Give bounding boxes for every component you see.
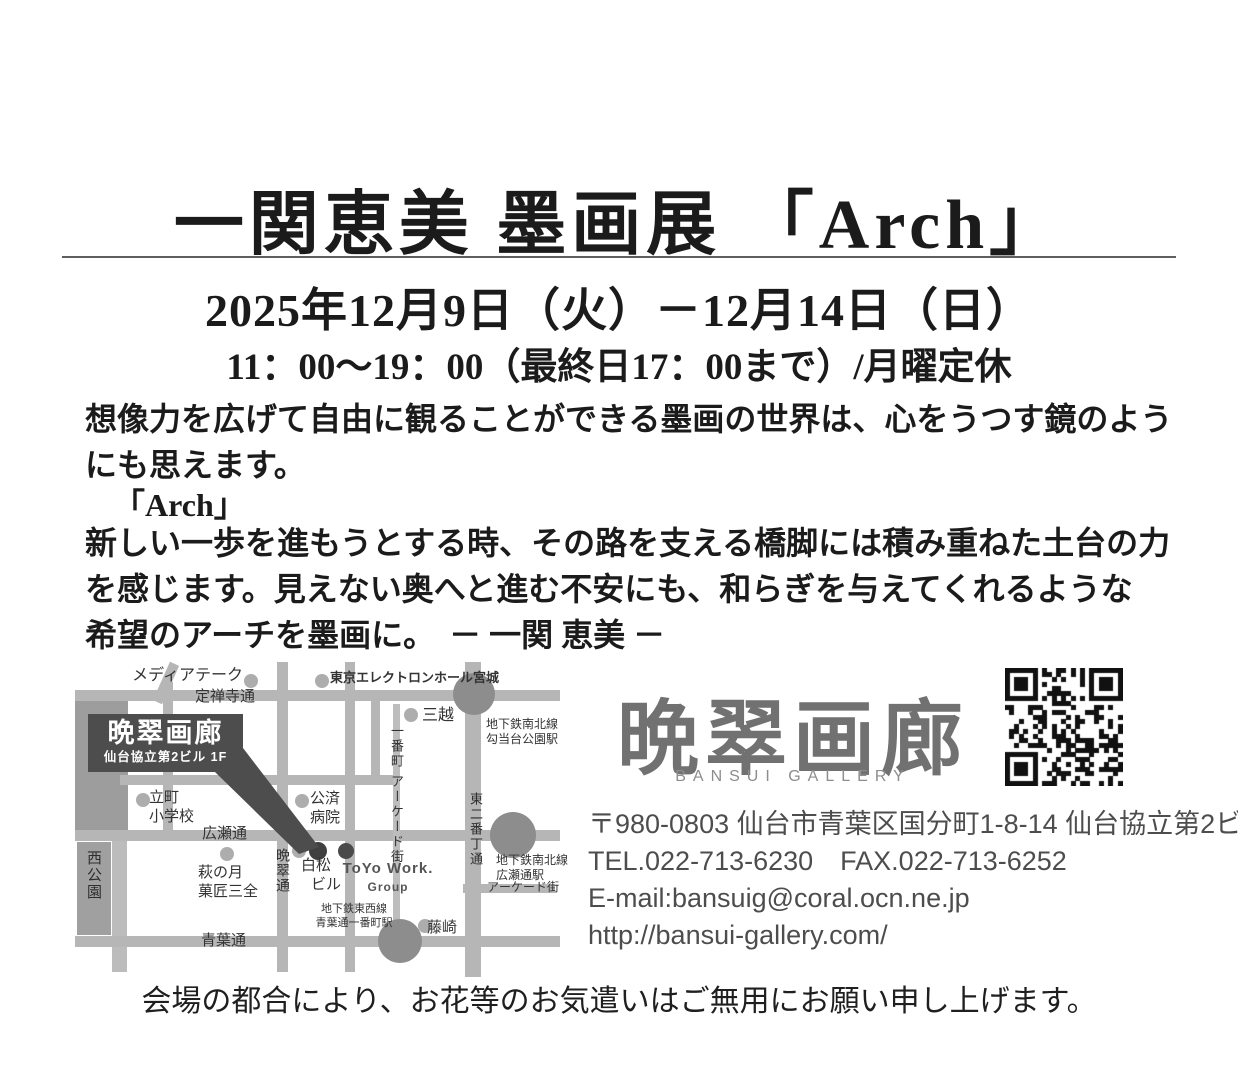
statement-line: を感じます。見えない奥へと進む不安にも、和らぎを与えてくれるような: [85, 566, 1215, 612]
gallery-callout-title: 晩翠画廊: [88, 716, 243, 750]
tokyo-electron-hall-label: 東京エレクトロンホール宮城: [330, 668, 499, 687]
artist-signature: － 一関 恵美 －: [449, 617, 665, 653]
statement-line: 想像力を広げて自由に観ることができる墨画の世界は、心をうつす鏡のよう: [85, 396, 1215, 442]
access-map: 西公園 晩翠画廊: [75, 662, 560, 977]
mitsukoshi-label: 三越: [422, 706, 454, 725]
toyo-work-label: ToYo Work. Group: [333, 859, 443, 897]
higashi-nibancho-label: 東二番丁通: [466, 792, 485, 867]
statement-line: 新しい一歩を進もうとする時、その路を支える橋脚には積み重ねた土台の力: [85, 520, 1215, 566]
title-divider: [62, 256, 1176, 258]
ichibancho-arcade-label: 一番町 アーケード街: [387, 724, 406, 865]
exhibition-dates: 2025年12月9日（火）－12月14日（日）: [0, 274, 1238, 340]
hirose-street-label: 広瀬通: [202, 824, 247, 843]
gallery-address: 〒980-0803 仙台市青葉区国分町1-8-14 仙台協立第2ビル1F: [588, 806, 1238, 843]
kotodai-station-label: 地下鉄南北線 勾当台公園駅: [486, 717, 558, 747]
mediatheque-dot: [244, 674, 258, 688]
exhibition-hours: 11：00～19：00（最終日17：00まで）/月曜定休: [0, 336, 1238, 390]
kosai-hospital-label: 公済 病院: [310, 789, 340, 827]
jozenji-street-label: 定禅寺通: [195, 687, 255, 706]
gallery-callout-subtitle: 仙台協立第2ビル 1F: [88, 750, 243, 764]
page-title: 一関恵美 墨画展 「Arch」: [0, 168, 1238, 269]
minor-vertical-street: [371, 701, 380, 781]
bansui-street: [277, 662, 288, 972]
qr-code: [1005, 668, 1123, 786]
tachimachi-school-dot: [136, 793, 150, 807]
mediatheque-label: メディアテーク: [115, 666, 243, 685]
bansui-street-label: 晩翠通: [273, 848, 293, 893]
nishi-koen-side-street: [112, 830, 127, 972]
arcade-street-label: アーケード街: [487, 880, 559, 895]
haginotsuki-dot: [220, 847, 234, 861]
hirosedori-station-circle: [490, 812, 536, 858]
statement-paragraph-1: 想像力を広げて自由に観ることができる墨画の世界は、心をうつす鏡のよう にも思えま…: [85, 396, 1215, 488]
aoba-street-label: 青葉通: [201, 931, 246, 950]
mitsukoshi-dot: [404, 708, 418, 722]
statement-line: 希望のアーチを墨画に。－ 一関 恵美 －: [85, 612, 1215, 658]
hirosedori-station-label: 地下鉄南北線 広瀬通駅: [496, 853, 568, 883]
gallery-contact-block: 〒980-0803 仙台市青葉区国分町1-8-14 仙台協立第2ビル1F TEL…: [588, 806, 1238, 954]
gallery-logo-subtitle: BANSUI GALLERY: [598, 768, 988, 786]
haginotsuki-label: 萩の月 菓匠三全: [198, 863, 258, 901]
statement-paragraph-2: 新しい一歩を進もうとする時、その路を支える橋脚には積み重ねた土台の力 を感じます…: [85, 520, 1215, 658]
tokyo-electron-hall-dot: [315, 674, 329, 688]
aobadori-station-label: 地下鉄東西線 青葉通一番町駅: [312, 902, 396, 930]
nishi-koen-label: 西公園: [83, 850, 104, 901]
aoba-street: [75, 936, 560, 947]
tachimachi-school-label: 立町 小学校: [149, 788, 194, 826]
hirose-street: [75, 830, 560, 841]
gallery-email: E-mail:bansuig@coral.ocn.ne.jp: [588, 880, 1238, 917]
footer-note: 会場の都合により、お花等のお気遣いはご無用にお願い申し上げます。: [0, 976, 1238, 1020]
fujisaki-label: 藤崎: [427, 918, 457, 937]
gallery-tel-fax: TEL.022-713-6230 FAX.022-713-6252: [588, 843, 1238, 880]
minor-street: [120, 775, 398, 785]
gallery-url: http://bansui-gallery.com/: [588, 917, 1238, 954]
gallery-callout: 晩翠画廊 仙台協立第2ビル 1F: [88, 714, 243, 772]
exhibition-flyer: 一関恵美 墨画展 「Arch」 2025年12月9日（火）－12月14日（日） …: [0, 0, 1238, 1080]
kosai-hospital-dot: [295, 794, 309, 808]
